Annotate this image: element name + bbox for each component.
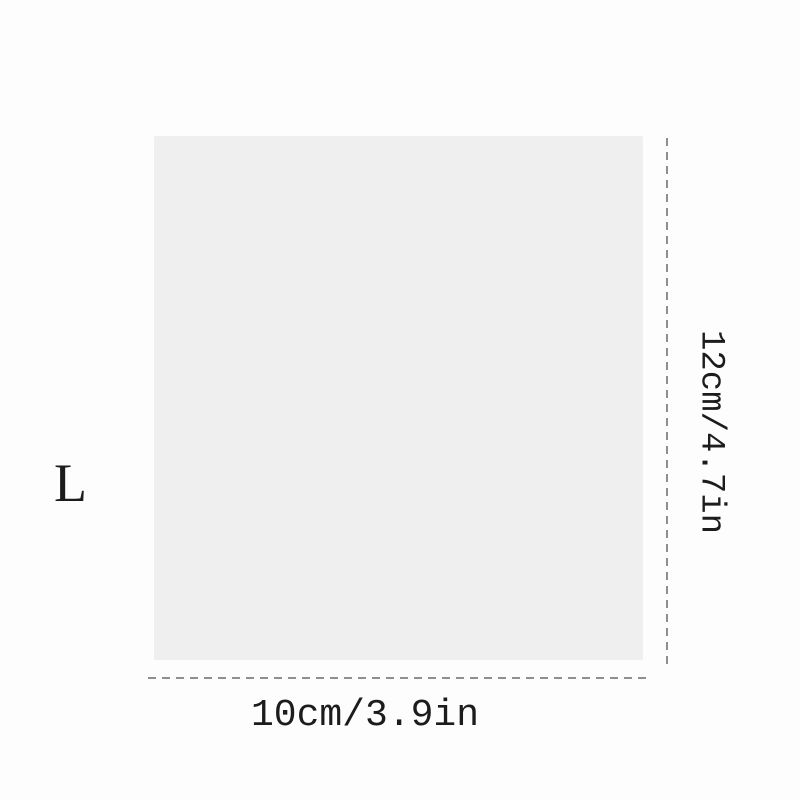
product-dimension-diagram: L 10cm/3.9in 12cm/4.7in — [0, 0, 800, 800]
size-label: L — [54, 456, 87, 510]
width-dimension-line — [148, 677, 648, 679]
height-dimension-label: 12cm/4.7in — [686, 330, 734, 534]
product-swatch — [154, 136, 643, 660]
height-dimension-line — [666, 138, 668, 666]
width-dimension-label: 10cm/3.9in — [145, 694, 585, 738]
